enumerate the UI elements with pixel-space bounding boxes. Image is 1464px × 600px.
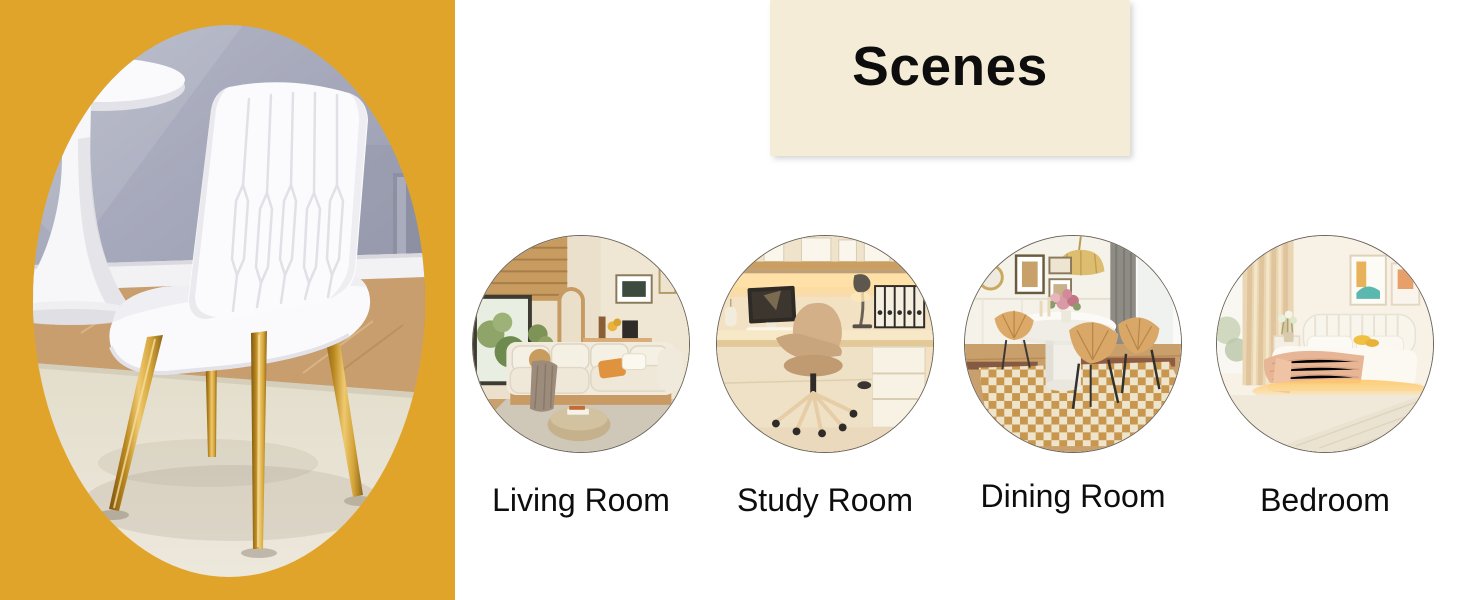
dining-room-photo [964,235,1182,453]
label-dining-room: Dining Room [933,479,1213,513]
study-room-photo [716,235,934,453]
product-banner: Scenes [0,0,1464,600]
scenes-header-box: Scenes [770,0,1130,156]
label-bedroom: Bedroom [1185,483,1464,517]
living-room-photo [472,235,690,453]
scenes-title: Scenes [852,34,1048,98]
label-living-room: Living Room [441,483,721,517]
left-accent-panel [0,0,455,600]
label-study-room: Study Room [685,483,965,517]
chair-photo-illustration [33,25,425,577]
bedroom-photo [1216,235,1434,453]
product-photo-chair [33,25,425,577]
